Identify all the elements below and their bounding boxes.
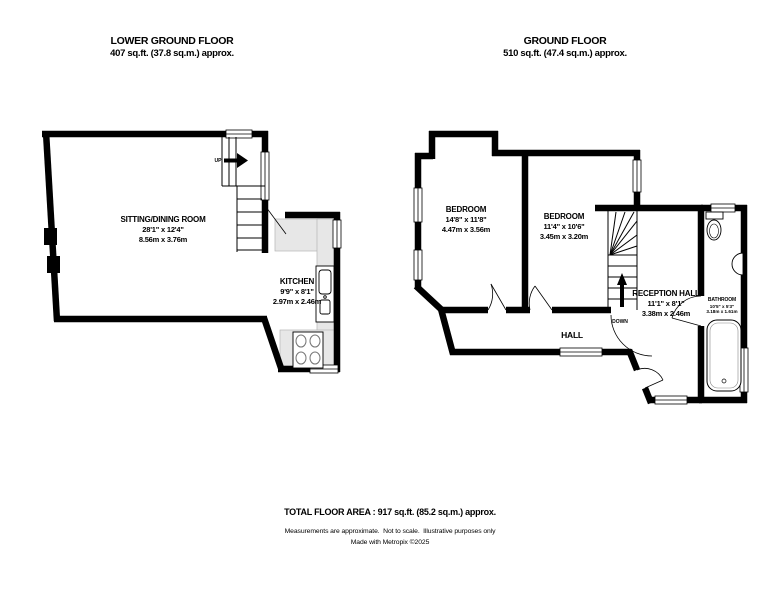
room-name: KITCHEN — [273, 277, 321, 287]
room-dims-imperial: 28'1" x 12'4" — [120, 225, 205, 235]
ground-floor-title: GROUND FLOOR 510 sq.ft. (47.4 sq.m.) app… — [503, 35, 627, 59]
wash-basin-icon — [732, 253, 743, 275]
room-label-hall: HALL — [561, 330, 583, 340]
room-label-bathroom: BATHROOM 10'5" x 5'3" 3.18m x 1.61m — [706, 297, 737, 315]
room-dims-metric: 8.56m x 3.76m — [120, 235, 205, 245]
stairs-up-label: UP — [215, 158, 222, 164]
room-dims-metric: 2.97m x 2.46m — [273, 297, 321, 307]
floor-area-text: 510 sq.ft. (47.4 sq.m.) approx. — [503, 48, 627, 60]
floor-area-text: 407 sq.ft. (37.8 sq.m.) approx. — [110, 48, 234, 60]
toilet-icon — [706, 212, 723, 240]
floorplan-canvas: LOWER GROUND FLOOR 407 sq.ft. (37.8 sq.m… — [0, 0, 782, 600]
total-floor-area: TOTAL FLOOR AREA : 917 sq.ft. (85.2 sq.m… — [284, 507, 496, 517]
room-name: BEDROOM — [540, 212, 588, 222]
staircase-up-icon — [222, 137, 265, 252]
room-dims-metric: 4.47m x 3.56m — [442, 225, 490, 235]
disclaimer: Measurements are approximate. Not to sca… — [285, 528, 496, 535]
floor-title-text: GROUND FLOOR — [503, 35, 627, 48]
room-dims-metric: 3.38m x 2.46m — [632, 309, 699, 319]
lower-ground-floor-title: LOWER GROUND FLOOR 407 sq.ft. (37.8 sq.m… — [110, 35, 234, 59]
room-dims-imperial: 11'1" x 8'1" — [632, 299, 699, 309]
room-dims-metric: 3.45m x 3.20m — [540, 232, 588, 242]
room-dims-imperial: 11'4" x 10'6" — [540, 222, 588, 232]
room-name: RECEPTION HALL — [632, 289, 699, 299]
floor-title-text: LOWER GROUND FLOOR — [110, 35, 234, 48]
window-midlines — [418, 160, 744, 400]
room-dims-imperial: 14'8" x 11'8" — [442, 215, 490, 225]
room-name: BATHROOM — [706, 297, 737, 304]
room-label-sitting-dining: SITTING/DINING ROOM 28'1" x 12'4" 8.56m … — [120, 215, 205, 245]
room-dims-imperial: 9'9" x 8'1" — [273, 287, 321, 297]
room-label-bedroom-1: BEDROOM 14'8" x 11'8" 4.47m x 3.56m — [442, 205, 490, 235]
room-label-bedroom-2: BEDROOM 11'4" x 10'6" 3.45m x 3.20m — [540, 212, 588, 242]
bathtub-icon — [707, 320, 741, 391]
room-label-reception-hall: RECEPTION HALL 11'1" x 8'1" 3.38m x 2.46… — [632, 289, 699, 319]
room-name: SITTING/DINING ROOM — [120, 215, 205, 225]
credit: Made with Metropix ©2025 — [351, 539, 430, 546]
walls — [415, 131, 747, 403]
room-name: BEDROOM — [442, 205, 490, 215]
stairs-arrow-icon — [617, 273, 627, 307]
stairs-down-label: DOWN — [612, 319, 628, 325]
room-dims-metric: 3.18m x 1.61m — [706, 309, 737, 315]
lower-ground-floor-plan — [30, 120, 370, 390]
room-label-kitchen: KITCHEN 9'9" x 8'1" 2.97m x 2.46m — [273, 277, 321, 307]
ground-floor-plan — [405, 120, 755, 420]
kitchen-hob-icon — [293, 332, 323, 368]
